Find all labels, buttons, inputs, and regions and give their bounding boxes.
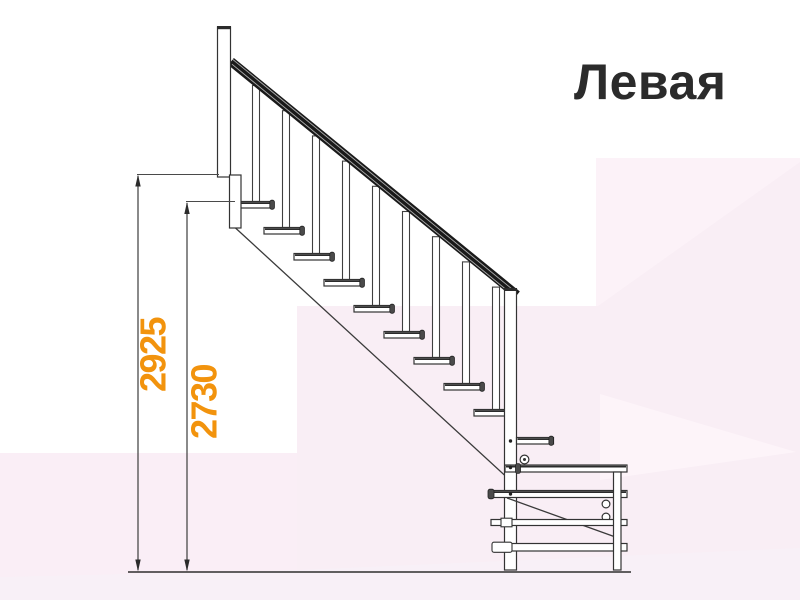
- screw-circle: [520, 455, 529, 464]
- baluster: [433, 237, 440, 358]
- baluster: [253, 86, 260, 202]
- tread: [414, 356, 454, 365]
- top-post-cap: [217, 26, 231, 29]
- newel-post: [504, 288, 517, 570]
- tread: [384, 330, 424, 339]
- arrow-up-icon: [184, 202, 189, 214]
- tread: [444, 382, 484, 391]
- newel-screw: [509, 466, 512, 469]
- baluster: [373, 186, 380, 305]
- baluster: [463, 262, 470, 384]
- tread: [294, 252, 334, 261]
- platform-leg: [614, 472, 622, 570]
- tread: [354, 304, 394, 313]
- tread: [264, 226, 304, 235]
- dimension-label-2730: 2730: [184, 364, 225, 439]
- baluster: [493, 287, 500, 409]
- newel-screw: [509, 439, 512, 442]
- platform-rail-middle: [491, 518, 627, 527]
- baluster: [313, 136, 320, 254]
- top-post: [217, 26, 241, 228]
- baluster: [343, 161, 350, 279]
- page-title: Левая: [574, 56, 726, 108]
- tread: [324, 278, 364, 287]
- bolt-hole: [602, 500, 610, 508]
- baluster: [283, 111, 290, 228]
- platform-top: [505, 464, 627, 474]
- newel-screw: [509, 492, 512, 495]
- platform-rail-lower: [492, 542, 627, 552]
- arrow-up-icon: [135, 175, 140, 187]
- screenshot-root: 2925 2730 Левая: [0, 0, 800, 600]
- newel-post-cap: [504, 288, 517, 291]
- dimension-label-2925: 2925: [133, 316, 174, 392]
- small-tread: [517, 436, 554, 445]
- baluster: [403, 212, 410, 332]
